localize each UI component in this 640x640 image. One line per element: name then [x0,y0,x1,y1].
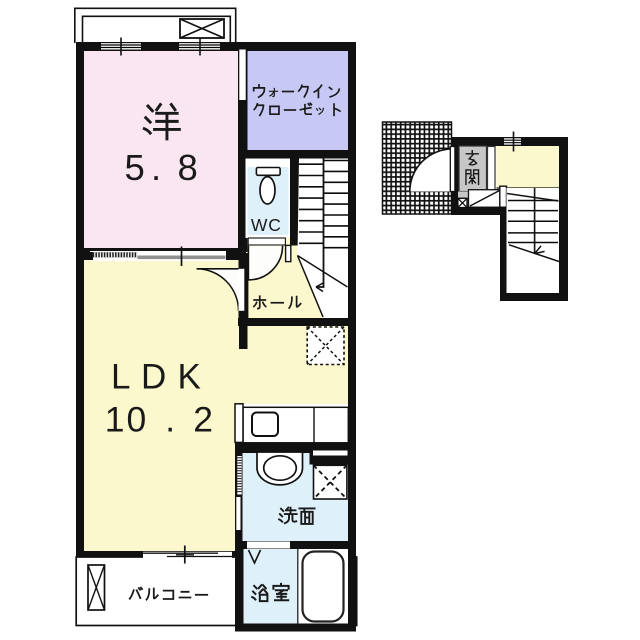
svg-text:LDK: LDK [111,358,201,397]
svg-text:WC: WC [251,215,281,235]
